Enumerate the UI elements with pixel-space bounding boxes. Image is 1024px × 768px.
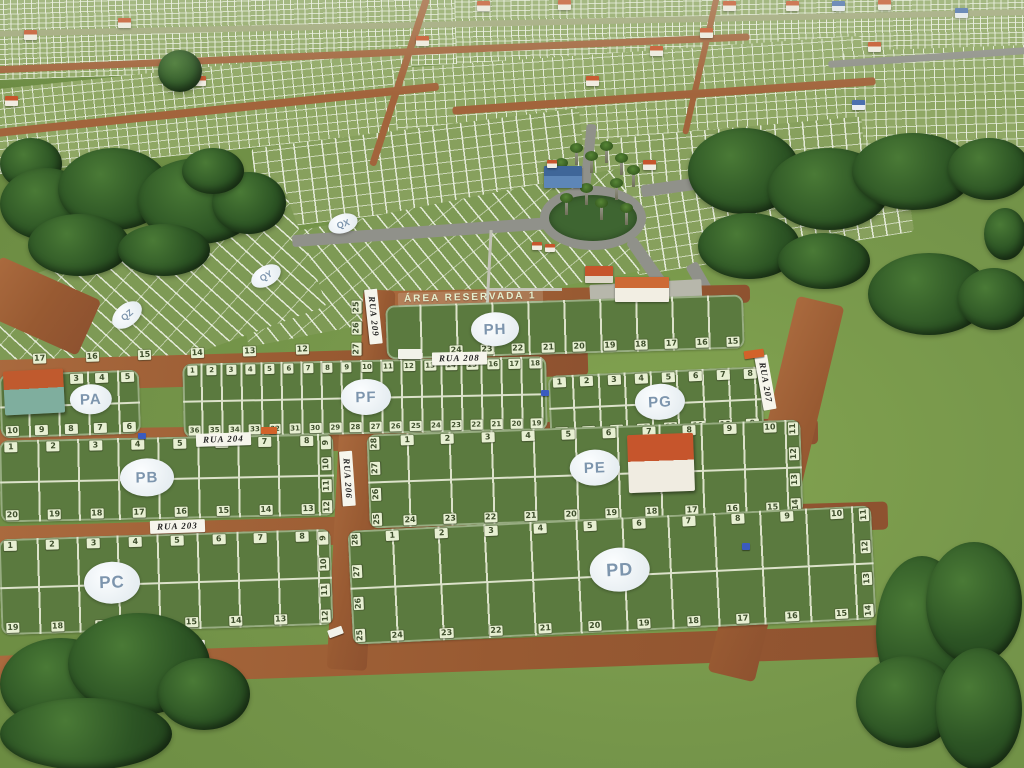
lot-number: 22 [470,420,482,430]
house-icon [3,368,65,415]
building-icon [544,166,582,188]
tree-icon [182,148,244,194]
lot-number: 8 [295,532,308,542]
palm-tree-icon [600,205,603,220]
street-sign-rua-208: RUA 208 [432,352,487,366]
house-icon [650,46,663,56]
lot-number: 19 [603,340,616,350]
block-label-PH: PH [471,311,520,346]
lot-number: 1 [187,366,197,376]
block-label-PE: PE [569,449,620,487]
house-icon [852,100,865,110]
lot-number: 1 [4,541,17,551]
car-icon [138,433,146,439]
lot-number: 18 [687,616,701,627]
lot-number: 9 [35,425,48,435]
lot-number: 20 [6,510,19,520]
lot-number: 27 [370,462,380,475]
lot-number: 1 [553,377,566,388]
lot-number: 18 [90,508,103,518]
lot-number: 2 [207,365,217,375]
lot-number: 11 [320,583,330,596]
lot-number: 10 [361,362,373,372]
lot-number: 2 [441,434,454,444]
lot-number: 6 [632,518,645,529]
lot-number: 6 [689,371,702,382]
lot-number: 33 [249,424,261,434]
car-icon [742,543,750,550]
lot-number: 12 [860,540,871,554]
lot-number: 13 [274,614,287,624]
palm-tree-icon [585,190,588,205]
lot-number: 3 [70,374,83,384]
lot-number: 1 [401,435,414,445]
lot-number: 23 [450,420,462,430]
lot-column: 28272625 [349,534,367,641]
lot-number: 22 [511,343,524,353]
lot-number: 17 [33,353,46,363]
lot-number: 26 [390,421,402,431]
house-icon [643,160,656,170]
lot-number: 15 [217,506,230,516]
lot-column: 9101112 [319,438,334,512]
lot-number: 2 [580,376,593,387]
palm-tree-icon [620,160,623,175]
lot-number: 18 [51,621,64,631]
lot-number: 5 [562,429,575,439]
lot-number: 8 [731,513,744,524]
lot-number: 5 [583,521,596,532]
lot-number: 17 [508,359,520,369]
tree-icon [948,138,1024,200]
lot-number: 18 [634,339,647,349]
lot-number: 17 [132,507,145,517]
tree-icon [118,224,210,276]
block-letter: QX [335,217,350,231]
lot-number: 12 [789,447,799,460]
block-label-PB: PB [120,458,175,497]
lot-number: 2 [435,528,448,539]
tree-icon [958,268,1024,330]
lot-number: 3 [484,526,497,537]
block-PB: 12345678 2019181716151413 9101112 PB [0,434,335,523]
lot-number: 25 [410,421,422,431]
block-letter: PG [648,393,672,411]
lot-number: 3 [87,538,100,548]
lot-number: 3 [481,432,494,442]
lot-number: 4 [129,537,142,547]
lot-column: 11121314 [786,423,802,509]
lot-number: 11 [858,508,869,522]
house-icon [547,160,557,168]
lot-number: 13 [790,473,800,486]
house-icon [832,1,845,11]
lot-number: 8 [300,436,313,446]
roundabout [540,186,646,250]
lot-number: 15 [835,609,849,620]
lot-number: 29 [329,423,341,433]
tree-icon [936,648,1022,768]
lot-number: 1 [4,442,17,452]
lot-number: 4 [131,439,144,449]
house-icon [558,0,571,10]
tree-icon [926,542,1022,664]
block-label-PF: PF [341,378,392,415]
lot-number: 10 [830,509,844,520]
street-sign-rua-204: RUA 204 [196,432,251,447]
lot-number: 20 [572,341,585,351]
tree-icon [158,50,202,92]
block-letter: QZ [119,307,135,323]
lot-number: 27 [370,422,382,432]
lot-number: 10 [763,422,776,432]
lot-number: 26 [371,487,381,500]
lot-number: 26 [352,321,362,334]
house-icon [24,30,37,40]
lot-column: 28272625 [368,438,384,524]
house-icon [723,1,736,11]
lot-number: 20 [564,509,577,519]
tree-icon [984,208,1024,260]
block-label-PC: PC [83,561,140,605]
lot-number: 6 [212,534,225,544]
lot-number: 17 [665,338,678,348]
block-letter: PH [483,320,506,338]
lot-number: 6 [602,428,615,438]
lot-number: 24 [430,420,442,430]
lot-number: 20 [588,621,602,632]
lot-number: 21 [539,623,553,634]
lot-number: 7 [303,363,313,373]
lot-number: 9 [321,436,331,449]
block-PF: 123456789101112131415161718 363534333231… [182,356,547,438]
lot-number: 31 [289,423,301,433]
lot-number: 9 [780,511,793,522]
lot-number: 28 [350,422,362,432]
lot-number: 24 [390,630,404,641]
lot-number: 5 [662,372,675,383]
lot-number: 23 [440,628,454,639]
lot-number: 7 [93,423,106,433]
palm-tree-icon [605,148,608,163]
lot-number: 27 [352,342,362,355]
lot-number: 3 [607,375,620,386]
lot-number: 2 [46,441,59,451]
lot-number: 24 [403,515,416,525]
house-icon [627,433,695,493]
lot-number: 19 [531,418,543,428]
palm-tree-icon [625,210,628,225]
block-PD: 28272625 12345678910 2423222120191817161… [348,505,877,644]
block-letter: PF [355,388,377,405]
lot-number: 18 [529,358,541,368]
lot-number: 20 [510,419,522,429]
lot-number: 10 [319,557,329,570]
house-icon [786,1,799,11]
block-label-PG: PG [634,383,686,421]
lot-number: 4 [534,523,547,534]
lot-number: 4 [245,364,255,374]
lot-number: 12 [296,344,309,354]
lot-number: 5 [173,439,186,449]
lot-number: 5 [264,364,274,374]
lot-number: 2 [45,539,58,549]
lot-number: 15 [726,337,739,347]
building-icon [615,277,669,302]
tree-icon [778,233,870,289]
lot-number: 30 [309,423,321,433]
lot-number: 14 [191,348,204,358]
palm-tree-icon [590,158,593,173]
lot-number: 14 [229,616,242,626]
house-icon [868,42,881,52]
lot-number: 1 [386,530,399,541]
house-icon [586,76,599,86]
lot-number: 14 [259,505,272,515]
lot-number: 7 [682,516,695,527]
lot-number: 13 [243,346,256,356]
lot-number: 27 [352,565,363,579]
lot-number: 11 [321,479,331,492]
lot-number: 9 [342,362,352,372]
lot-number: 11 [382,361,394,371]
lot-number: 4 [95,373,108,383]
lot-number: 9 [723,424,736,434]
palm-tree-icon [575,150,578,165]
palm-tree-icon [615,185,618,200]
bus-icon [398,349,422,359]
lot-number: 10 [6,426,19,436]
lot-number: 6 [284,363,294,373]
block-label-PD: PD [589,546,651,593]
lot-number: 19 [48,509,61,519]
block-letter: PD [606,558,634,580]
lot-number: 25 [352,300,362,313]
house-icon [545,244,555,252]
lot-number: 8 [744,368,757,379]
lot-number: 10 [321,457,331,470]
tree-icon [158,658,250,730]
lot-number: 26 [353,597,364,611]
lot-number: 7 [716,370,729,381]
lot-number: 16 [487,359,499,369]
lot-number: 5 [170,535,183,545]
lot-row: 109876 [1,422,141,437]
block-letter: PC [99,572,125,593]
truck-icon [261,427,277,434]
lot-number: 16 [695,337,708,347]
house-icon [878,0,891,10]
block-letter: PB [135,469,158,486]
house-icon [700,28,713,38]
house-icon [118,18,131,28]
lot-number: 8 [64,424,77,434]
car-icon [541,390,549,396]
lot-number: 21 [524,511,537,521]
lot-column: 9101112 [316,533,332,621]
block-letter: PA [80,390,102,408]
lot-number: 7 [254,533,267,543]
lot-number: 22 [484,512,497,522]
lot-number: 4 [521,431,534,441]
block-letter: PE [583,459,606,477]
palm-tree-icon [632,172,635,187]
lot-column: 252627 [350,302,363,354]
lot-number: 21 [490,419,502,429]
lot-number: 6 [123,422,136,432]
lot-number: 5 [121,372,134,382]
lot-number: 22 [489,625,503,636]
lot-number: 14 [863,604,874,618]
lot-number: 3 [226,365,236,375]
lot-number: 16 [175,507,188,517]
lot-number: 3 [89,440,102,450]
lot-number: 13 [301,504,314,514]
palm-tree-icon [565,200,568,215]
lot-number: 17 [736,613,750,624]
house-icon [416,36,429,46]
lot-number: 12 [320,609,330,622]
lot-number: 15 [138,350,151,360]
lot-number: 8 [322,363,332,373]
lot-number: 21 [542,342,555,352]
tree-icon [28,214,130,276]
street-sign-rua-203: RUA 203 [150,519,205,534]
lot-number: 19 [6,623,19,633]
house-icon [5,96,18,106]
block-label-PA: PA [69,384,112,415]
lot-number: 11 [788,422,798,435]
lot-number: 13 [862,572,873,586]
house-icon [477,1,490,11]
house-icon [955,8,968,18]
house-icon [532,242,542,250]
block-letter: QY [258,268,274,283]
lot-number: 7 [258,437,271,447]
lot-number: 19 [637,618,651,629]
lot-number: 12 [403,361,415,371]
lot-number: 16 [85,352,98,362]
scale-model-photo: QZ QY QX [0,0,1024,768]
lot-number: 23 [444,513,457,523]
tree-icon [0,698,172,768]
lot-number: 16 [785,611,799,622]
pavilion-icon [585,266,613,283]
lot-number: 12 [322,500,332,513]
lot-number: 4 [635,373,648,384]
lot-number: 9 [318,531,328,544]
